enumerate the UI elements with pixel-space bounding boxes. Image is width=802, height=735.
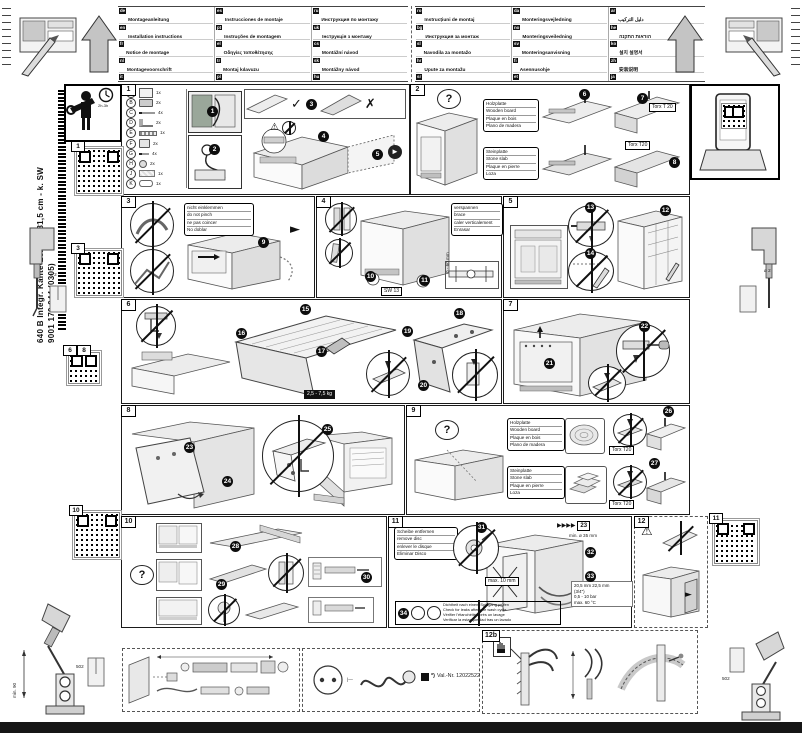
part-quantity: 1x bbox=[160, 130, 165, 136]
spec-line: max. 60 °C bbox=[574, 600, 630, 606]
crop-marks-left bbox=[2, 8, 11, 70]
disc-detail-circle: 31 bbox=[453, 525, 499, 571]
note-line: remove disc bbox=[397, 536, 455, 543]
legend-column: ruИнструкция по монтажуСохраните инструк… bbox=[312, 7, 408, 81]
torx-bit-label: Torx T 20 bbox=[649, 103, 676, 112]
legend-title: Οδηγίες τοποθέτησης bbox=[224, 51, 273, 56]
step-panel-11: 11 Scheibe entfernen remove disc enlever… bbox=[388, 516, 632, 628]
brace-note: verspannen brace caler verticalement Enr… bbox=[451, 203, 503, 236]
legend-item: elΟδηγίες τοποθέτησηςΦυλάξτε τις οδηγίες bbox=[216, 40, 310, 57]
pliers-cut-strip-illustration bbox=[491, 639, 561, 709]
legend-column: deMontageanleitungFür späteren Gebrauch … bbox=[118, 7, 215, 81]
plug-part-icon bbox=[139, 160, 147, 168]
screw-detail-circle: 13 bbox=[568, 205, 614, 247]
legend-item: ruИнструкция по монтажуСохраните инструк… bbox=[313, 7, 407, 24]
language-code-tag: sl bbox=[416, 41, 422, 47]
step-panel-5: 5 13 14 bbox=[503, 196, 690, 298]
legend-column: daMonteringsvejledningGem til senere bru… bbox=[512, 7, 609, 81]
do-not-pinch-note: nicht einklemmen do not pinch ne pas coi… bbox=[184, 203, 254, 236]
legend-title: Montážny návod bbox=[322, 68, 360, 73]
part-letter: F bbox=[126, 139, 136, 149]
note-line: Holzplatte bbox=[510, 420, 562, 427]
step-panel-1: 1 A1xB2xC4xD2xE1xF2xG4xH2xJ1xK1x 1 2 ✓ 3… bbox=[121, 84, 410, 195]
panel-12b-number: 12b bbox=[482, 630, 500, 642]
note-line: Plano de madera bbox=[510, 442, 562, 448]
leak-check-note: 34 Dichtheit nach einem Spülgang prüfen … bbox=[395, 601, 561, 625]
warning-icon: ⚠ bbox=[270, 123, 279, 133]
drill-pictogram-left: ø 2 bbox=[20, 224, 74, 328]
qr-step-10-label: 10 bbox=[69, 505, 83, 516]
plinth-rail-b: 29 bbox=[208, 557, 268, 589]
step-panel-8: 8 23 24 bbox=[121, 405, 405, 515]
language-code-tag: sk bbox=[313, 58, 320, 64]
step-badge: 21 bbox=[544, 358, 555, 369]
parts-list-row: F2x bbox=[126, 140, 184, 148]
legend-title: Montážní návod bbox=[322, 51, 358, 56]
qr-step-3: 3 bbox=[74, 248, 124, 298]
panel-6-number: 6 bbox=[121, 299, 136, 311]
appliance-front-view bbox=[510, 225, 568, 289]
torx-bit-label: Torx T20 bbox=[625, 141, 650, 150]
parts-list-row: K1x bbox=[126, 180, 184, 188]
qr-step-8-label: 8 bbox=[77, 345, 91, 356]
step-badge: 31 bbox=[476, 522, 487, 533]
kneeling-person-thumbnail: 2 bbox=[188, 135, 242, 189]
template-thumbnail: 1 bbox=[188, 91, 242, 133]
step-badge: 11 bbox=[419, 275, 430, 286]
note-line: Plano de madera bbox=[486, 123, 536, 129]
parts-list-row: G4x bbox=[126, 150, 184, 158]
no-side-panel-icon bbox=[661, 523, 699, 553]
language-code-tag: el bbox=[216, 41, 222, 47]
plug-type-icon bbox=[421, 673, 429, 681]
cable-length-tick: |— bbox=[347, 677, 353, 683]
legend-title: Instruções de montagem bbox=[224, 35, 281, 40]
cord-part-icon bbox=[139, 180, 153, 187]
note-line: Stone slab bbox=[486, 156, 536, 163]
step-badge: 33 bbox=[585, 571, 596, 582]
language-code-tag: fr bbox=[119, 41, 124, 47]
parts-list-row: D2x bbox=[126, 119, 184, 127]
wooden-board-note: Holzplatte Wooden board Plaque en bois P… bbox=[483, 99, 539, 132]
panel-4-number: 4 bbox=[316, 196, 331, 208]
pencil-mark-detail-circle: 14 bbox=[568, 251, 614, 291]
push-arrow-icon: ► bbox=[290, 223, 300, 236]
drill-diameter-label: ø 2 bbox=[50, 272, 57, 278]
part-letter: E bbox=[126, 128, 136, 138]
wood-fix-detail-circle bbox=[613, 414, 647, 446]
fast-forward-icon: ▶▶▶▶ bbox=[557, 522, 575, 529]
remove-disc-note: Scheibe entfernen remove disc enlever le… bbox=[394, 527, 458, 560]
legend-group-west: deMontageanleitungFür späteren Gebrauch … bbox=[118, 6, 408, 82]
qr-step-1: 1 bbox=[74, 146, 124, 196]
legend-item: svMonteringsanvisningSpara för framtida … bbox=[513, 40, 607, 57]
question-bubble: ? bbox=[437, 89, 461, 109]
legend-item: etPaigaldusjuhendHoidke edaspidiseks all… bbox=[513, 73, 607, 81]
note-line: Wooden board bbox=[486, 108, 536, 115]
max-gap-label: max. 10 mm bbox=[485, 577, 519, 586]
language-code-tag: ja bbox=[610, 74, 616, 80]
step-badge: 15 bbox=[300, 304, 311, 315]
legend-item: deMontageanleitungFür späteren Gebrauch … bbox=[119, 7, 213, 24]
language-legend: deMontageanleitungFür späteren Gebrauch … bbox=[118, 6, 660, 82]
drain-hose-arc-illustration bbox=[617, 637, 689, 709]
step-badge: 16 bbox=[236, 328, 247, 339]
warning-icon: ⚠ bbox=[641, 527, 653, 537]
question-bubble: ? bbox=[130, 565, 154, 585]
step-badge: 8 bbox=[669, 157, 680, 168]
stone-pile-icon bbox=[565, 466, 607, 504]
language-code-tag: pt bbox=[216, 25, 222, 31]
plinth-rail-a: 28 bbox=[208, 523, 304, 553]
parts-list-row: J1x bbox=[126, 170, 184, 178]
step-panel-12: 12 ⚠ ► bbox=[634, 516, 708, 628]
front-panel-edge-illustration bbox=[128, 348, 234, 400]
strip-part-icon bbox=[139, 131, 157, 136]
step-badge: 14 bbox=[585, 248, 596, 259]
legend-item: fiAsennusohjeSäilytä myöhempää käyttöä v… bbox=[513, 57, 607, 74]
language-code-tag: it bbox=[119, 74, 124, 80]
qr-step-11-label: 11 bbox=[709, 513, 723, 524]
part-quantity: 1x bbox=[156, 181, 161, 187]
wooden-board-note: Holzplatte Wooden board Plaque en bois P… bbox=[507, 418, 565, 451]
torx-bit-label: Torx T20 bbox=[609, 500, 634, 509]
legend-item: itIstruzioni di montaggioConservare per … bbox=[119, 73, 213, 81]
valnr-star: *) bbox=[431, 673, 435, 679]
note-line: enlever le disque bbox=[397, 544, 455, 551]
time-estimate: 2h-3h bbox=[98, 103, 108, 109]
part-quantity: 1x bbox=[158, 171, 163, 177]
legend-title: دليل التركيب bbox=[618, 18, 643, 23]
template-part-icon bbox=[139, 88, 153, 98]
installer-time-pictogram: 2h-3h bbox=[64, 84, 122, 142]
clip-detail-circle bbox=[268, 555, 304, 591]
part-letter: D bbox=[126, 118, 136, 128]
hinge-part-icon bbox=[139, 99, 153, 107]
step-badge: 23 bbox=[184, 442, 195, 453]
panel-1-number: 1 bbox=[121, 84, 136, 96]
note-line: Eliminar Disco bbox=[397, 551, 455, 557]
language-code-tag: de bbox=[119, 8, 126, 14]
language-code-tag: fi bbox=[513, 58, 518, 64]
note-line: Enrasar bbox=[454, 227, 500, 233]
qr-step-3-label: 3 bbox=[71, 243, 85, 254]
parts-list-row: B2x bbox=[126, 99, 184, 107]
counter-edge-illustration bbox=[413, 442, 505, 504]
step-badge: 9 bbox=[258, 237, 269, 248]
panel-thickness-check-strip: ✓ 3 ✗ bbox=[244, 89, 406, 119]
part-quantity: 2x bbox=[150, 161, 155, 167]
hook-detail-circle bbox=[136, 306, 176, 346]
legend-title: Montagevoorschrift bbox=[127, 68, 172, 73]
legend-title: Instrucțiuni de montaj bbox=[424, 18, 474, 23]
step-badge: 19 bbox=[402, 326, 413, 337]
plinth-variant-a bbox=[156, 523, 202, 553]
panel-12-number: 12 bbox=[634, 516, 649, 528]
note-line: Steinplatte bbox=[486, 149, 536, 156]
water-spec-box: 20,5 mm 22,5 mm (3/4") 0,5 - 10 bar max.… bbox=[571, 581, 633, 607]
bracket-part-icon bbox=[139, 119, 153, 127]
step-badge: 24 bbox=[222, 476, 233, 487]
language-code-tag: nl bbox=[119, 58, 125, 64]
step-badge: 26 bbox=[663, 406, 674, 417]
spirit-level-detail bbox=[445, 261, 499, 289]
dishwasher-under-counter-illustration bbox=[415, 107, 479, 189]
language-code-tag: sr bbox=[416, 74, 422, 80]
stone-slab-note: Steinplatte Stone slab Plaque en pierre … bbox=[507, 466, 565, 499]
corner-fix-detail-circle bbox=[366, 352, 410, 396]
hose-parts-box bbox=[122, 648, 300, 712]
note-line: ne pas coincer bbox=[187, 220, 251, 227]
language-code-tag: ko bbox=[610, 41, 617, 47]
panel-11-number: 11 bbox=[388, 516, 403, 528]
legend-item: esInstrucciones de montajeGuardar para u… bbox=[216, 7, 310, 24]
note-line: do not pinch bbox=[187, 212, 251, 219]
legend-item: nlMontagevoorschriftBewaren voor later g… bbox=[119, 57, 213, 74]
legend-item: ja設置説明書保管してください bbox=[610, 73, 704, 81]
legend-column: esInstrucciones de montajeGuardar para u… bbox=[215, 7, 312, 81]
step-badge: 27 bbox=[649, 458, 660, 469]
language-code-tag: hr bbox=[416, 58, 422, 64]
part-quantity: 2x bbox=[156, 120, 161, 126]
step-badge: 13 bbox=[585, 202, 596, 213]
language-code-tag: pl bbox=[216, 74, 222, 80]
parts-list: A1xB2xC4xD2xE1xF2xG4xH2xJ1xK1x bbox=[126, 89, 187, 188]
note-line: Plaque en pierre bbox=[486, 164, 536, 171]
step-panel-9: 9 ? Holzplatte Wooden board Plaque en bo… bbox=[406, 405, 690, 515]
cover-part-icon bbox=[139, 139, 150, 148]
step-badge: 1 bbox=[207, 106, 218, 117]
pencil-marking-illustration-right bbox=[722, 12, 786, 78]
legend-title: Інструкція з монтажу bbox=[322, 35, 372, 40]
stone-slab-note: Steinplatte Stone slab Plaque en pierre … bbox=[483, 147, 539, 180]
part-quantity: 4x bbox=[158, 110, 163, 116]
legend-item: skMontážny návodUschovajte pre neskoršie… bbox=[313, 57, 407, 74]
screwdriver-anchor-pictogram-right bbox=[726, 628, 800, 724]
panel-7-number: 7 bbox=[503, 299, 518, 311]
fast-forward-reference: ▶▶▶▶ 23 bbox=[557, 521, 590, 531]
legend-group-east: roInstrucțiuni de montajPăstrați pentru … bbox=[415, 6, 705, 82]
part-letter: B bbox=[126, 98, 136, 108]
screw-part-icon bbox=[139, 112, 155, 114]
qr-step-11: 11 bbox=[712, 518, 760, 566]
flip-up-arrow-icon bbox=[80, 14, 118, 74]
dishwasher-carry-illustration: 4 5 bbox=[244, 125, 402, 191]
language-code-tag: es bbox=[216, 8, 223, 14]
height-adjust-dimension: 0 - 60 mm bbox=[445, 233, 451, 273]
legend-item: frNotice de montageÀ conserver pour cons… bbox=[119, 40, 213, 57]
panel-9-number: 9 bbox=[406, 405, 421, 417]
note-line: Plaque en bois bbox=[510, 435, 562, 442]
step-badge: 2 bbox=[209, 144, 220, 155]
legend-title: Notice de montage bbox=[126, 51, 169, 56]
legend-title: Montaj kılavuzu bbox=[223, 68, 259, 73]
part-quantity: 2x bbox=[156, 100, 161, 106]
language-code-tag: uk bbox=[313, 25, 320, 31]
hose-routing-detail-circle bbox=[130, 249, 174, 293]
cross-icon: ✗ bbox=[365, 98, 376, 111]
flip-up-arrow-icon-right bbox=[666, 14, 704, 74]
reference-step-number: 23 bbox=[577, 521, 590, 531]
no-pinch-hose-icon bbox=[130, 203, 174, 247]
language-code-tag: hu bbox=[313, 74, 320, 80]
countertop-bracket-bottom-row bbox=[541, 141, 681, 189]
parts-list-row: E1x bbox=[126, 129, 184, 137]
legend-title: Asennusohje bbox=[520, 68, 550, 73]
legend-item: noMonteringsveiledningOppbevar for sener… bbox=[513, 24, 607, 41]
plinth-variant-c bbox=[156, 597, 202, 625]
part-quantity: 2x bbox=[153, 141, 158, 147]
panel-8-number: 8 bbox=[121, 405, 136, 417]
screw-fix-detail-circle bbox=[452, 352, 498, 398]
part-letter: C bbox=[126, 108, 136, 118]
note-line: Scheibe entfernen bbox=[397, 529, 455, 536]
legend-item: slNavodila za montažoShranite za poznejš… bbox=[416, 40, 510, 57]
step-badge: 30 bbox=[361, 572, 372, 583]
legend-title: Инструкция за монтаж bbox=[425, 35, 478, 40]
drill-diameter-label-right: ø 2 bbox=[764, 268, 771, 274]
print-edge-bar bbox=[0, 722, 802, 733]
note-line: Loza bbox=[510, 490, 562, 496]
step-badge: 29 bbox=[216, 579, 227, 590]
parts-list-row: H2x bbox=[126, 160, 184, 168]
legend-title: Monteringsveiledning bbox=[522, 35, 572, 40]
part-quantity: 1x bbox=[156, 90, 161, 96]
no-tilt-icon bbox=[325, 239, 353, 267]
part-quantity: 4x bbox=[152, 151, 157, 157]
language-code-tag: tr bbox=[216, 58, 221, 64]
plinth-gauge-box-2 bbox=[308, 597, 374, 623]
step-badge: 25 bbox=[322, 424, 333, 435]
depth-dimension-left: min. 90 bbox=[12, 650, 18, 698]
installation-sheet: deMontageanleitungFür späteren Gebrauch … bbox=[0, 0, 802, 735]
step-badge: 5 bbox=[372, 149, 383, 160]
legend-item: huSzerelési útmutatóŐrizze meg későbbi h… bbox=[313, 73, 407, 81]
pencil-marking-illustration bbox=[16, 12, 80, 78]
qr-step-1-label: 1 bbox=[71, 141, 85, 152]
question-bubble: ? bbox=[435, 420, 459, 440]
legend-item: daMonteringsvejledningGem til senere bru… bbox=[513, 7, 607, 24]
legend-column: roInstrucțiuni de montajPăstrați pentru … bbox=[415, 7, 512, 81]
legend-title: הוראות התקנה bbox=[619, 35, 651, 40]
anchor-code-left: 502 bbox=[76, 664, 84, 670]
step-badge: 32 bbox=[585, 547, 596, 558]
phone-screen-qr bbox=[722, 104, 746, 128]
anchor-code-right: 502 bbox=[722, 676, 730, 682]
language-code-tag: bg bbox=[416, 25, 423, 31]
legend-item: plInstrukcja montażuZachować do użytku w… bbox=[216, 73, 310, 81]
push-arrow-icon: ► bbox=[685, 589, 692, 602]
legend-title: Montageanleitung bbox=[128, 18, 169, 23]
language-code-tag: no bbox=[513, 25, 520, 31]
legend-title: Installation instructions bbox=[128, 35, 182, 40]
pliers-illustration bbox=[567, 643, 613, 705]
legend-item: ukІнструкція з монтажуЗбережіть інструкц… bbox=[313, 24, 407, 41]
note-line: Holzplatte bbox=[486, 101, 536, 108]
legend-title: Upute za montažu bbox=[424, 68, 465, 73]
step-panel-7: 7 21 22 bbox=[503, 299, 690, 404]
note-line: Plaque en bois bbox=[486, 116, 536, 123]
legend-title: Инструкция по монтажу bbox=[321, 18, 378, 23]
panel-10-number: 10 bbox=[121, 516, 136, 528]
door-weight-label: 2,5 - 7,5 kg bbox=[304, 390, 335, 399]
language-code-tag: zh bbox=[610, 58, 617, 64]
legend-item: roInstrucțiuni de montajPăstrați pentru … bbox=[416, 7, 510, 24]
no-bare-hands-icon bbox=[282, 121, 296, 135]
step-badge: 4 bbox=[318, 131, 329, 142]
part-letter: H bbox=[126, 159, 136, 169]
language-code-tag: et bbox=[513, 74, 519, 80]
panel-5-number: 5 bbox=[503, 196, 518, 208]
step-badge: 12 bbox=[660, 205, 671, 216]
step-badge: 6 bbox=[579, 89, 590, 100]
legend-divider bbox=[411, 6, 412, 82]
language-code-tag: sv bbox=[513, 41, 520, 47]
step-badge: 18 bbox=[454, 308, 465, 319]
wrench-size-label: SW 13 bbox=[381, 287, 402, 296]
note-line: Plaque en pierre bbox=[510, 483, 562, 490]
valnr-text: Val.-Nr. 12022522 bbox=[437, 673, 480, 679]
note-line: Stone slab bbox=[510, 475, 562, 482]
step-badge: 22 bbox=[639, 321, 650, 332]
qr-step-6-label: 6 bbox=[63, 345, 77, 356]
legend-item: enInstallation instructionsKeep for futu… bbox=[119, 24, 213, 41]
step-panel-4: 4 10 11 SW 13 0 - 60 mm verspannen brace… bbox=[316, 196, 502, 298]
note-line: brace bbox=[454, 212, 500, 219]
language-code-tag: da bbox=[513, 8, 520, 14]
power-connection-box: |— *) Val.-Nr. 12022522 bbox=[302, 648, 480, 712]
step-badge: 20 bbox=[418, 380, 429, 391]
stone-fix-detail-circle bbox=[613, 466, 647, 498]
stone-clamp-illustration: 27 bbox=[645, 464, 687, 506]
qr-steps-6-8: 6 8 bbox=[66, 350, 102, 386]
note-line: caler verticalement bbox=[454, 220, 500, 227]
note-line: Steinplatte bbox=[510, 468, 562, 475]
language-code-tag: ro bbox=[416, 8, 422, 14]
clip-detail-circle bbox=[588, 366, 626, 400]
marking-template-illustration: 12 bbox=[616, 203, 684, 293]
step-panel-12b: 12b bbox=[482, 630, 698, 714]
drill-pictogram-right bbox=[732, 224, 786, 328]
part-letter: K bbox=[126, 179, 136, 189]
note-line: Wooden board bbox=[510, 427, 562, 434]
part-letter: G bbox=[126, 149, 136, 159]
step-panel-3: 3 nicht einklemmen do not pinch ne pas c… bbox=[121, 196, 315, 298]
language-code-tag: cs bbox=[313, 41, 320, 47]
legend-title: 설치 설명서 bbox=[619, 51, 642, 56]
step-badge: 34 bbox=[398, 608, 409, 619]
panel-3-number: 3 bbox=[121, 196, 136, 208]
app-qr-phone-card bbox=[690, 84, 780, 180]
panel-2-number: 2 bbox=[410, 84, 425, 96]
legend-title: Navodila za montažo bbox=[424, 51, 471, 56]
legend-title: 安装说明 bbox=[619, 68, 638, 73]
foot-detail-circle bbox=[208, 595, 240, 625]
language-code-tag: ar bbox=[610, 8, 616, 14]
step-panel-10: 10 ? 28 29 30 bbox=[121, 516, 387, 628]
countertop-bracket-top-row bbox=[541, 91, 681, 135]
mount-door-panel-illustration: 23 24 bbox=[128, 414, 258, 510]
legend-title: Monteringsanvisning bbox=[522, 51, 570, 56]
check-icon: ✓ bbox=[291, 98, 302, 111]
qr-step-10: 10 bbox=[72, 510, 122, 560]
step-badge: 28 bbox=[230, 541, 241, 552]
note-line: Loza bbox=[486, 171, 536, 177]
step-badge: 17 bbox=[316, 346, 327, 357]
note-line: verspannen bbox=[454, 205, 500, 212]
crop-marks-right bbox=[791, 8, 800, 70]
legend-item: csMontážní návodUschovejte pro pozdější … bbox=[313, 40, 407, 57]
